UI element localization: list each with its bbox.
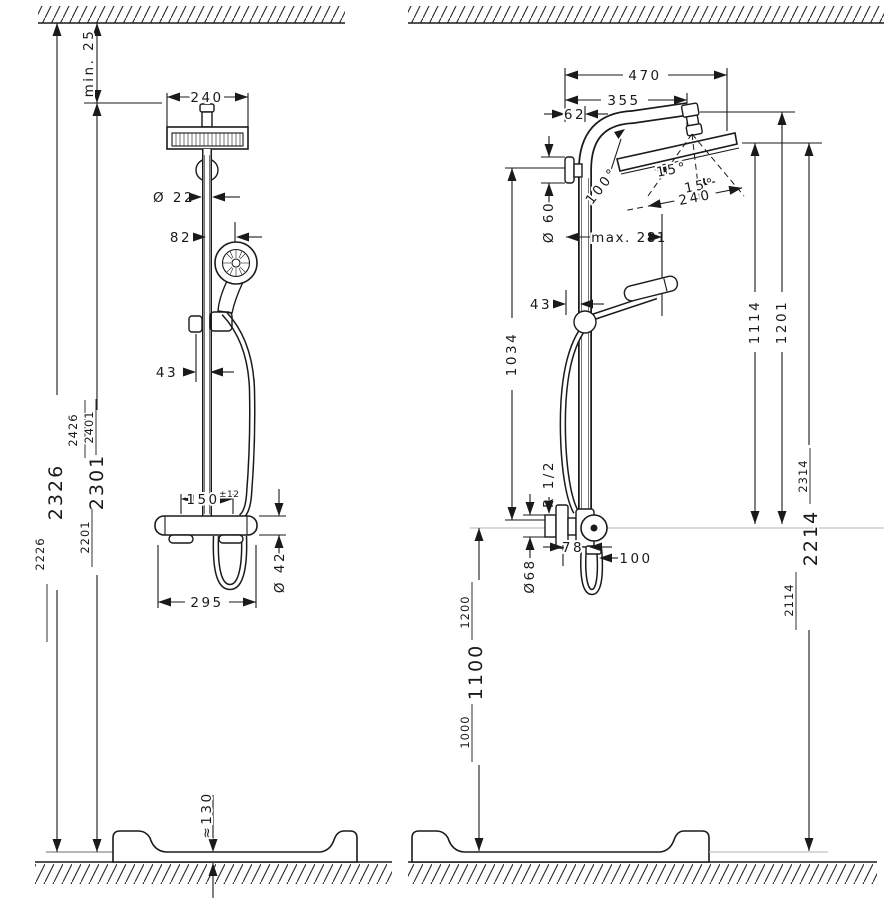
dim-hose-clearance-label: 100: [619, 551, 652, 567]
dim-valve-diameter-label: Ø 42: [272, 551, 288, 593]
wall-union-stub: [545, 515, 556, 537]
dim-wall-to-pipe-label: 62: [564, 107, 586, 123]
valve-handle-right: [219, 535, 243, 543]
dim-wall-to-pipe: 62: [544, 106, 608, 123]
dim-height-inner: min. 25 2201 2301 2401: [78, 23, 162, 852]
dim-hose-clearance: 100: [599, 551, 653, 567]
head-ball-joint: [681, 103, 702, 136]
valve-height-mid: 1100: [465, 644, 487, 700]
dim-slider-offset: 43: [156, 334, 234, 382]
height-outer-low: 2226: [33, 537, 47, 570]
dim-holder-offset-label: 43: [530, 297, 552, 313]
hand-shower-handle: [218, 281, 243, 313]
ceiling-left: [38, 6, 345, 23]
dim-slider-offset-label: 43: [156, 365, 178, 381]
ceiling-right: [408, 6, 884, 23]
height-outer-high: 2426: [66, 413, 80, 446]
valve-inlet-neck: [568, 518, 576, 535]
height-inner-high: 2401: [82, 410, 96, 443]
dim-union-diameter-label: Ø68: [522, 558, 538, 593]
valve-height-low: 1000: [458, 715, 472, 748]
shower-hose-left: [216, 313, 252, 587]
technical-drawing-page: 2226 2326 2426 min. 25 2201 2301 2401: [0, 0, 890, 900]
hand-shower-face: [215, 242, 257, 284]
dim-escutcheon-diameter: Ø 60: [541, 136, 565, 243]
valve-body: [155, 516, 257, 535]
dim-head-width-label: 240: [190, 90, 223, 106]
dim-head-height: 2114 2214 2314: [782, 143, 822, 851]
valve-handle-left: [169, 535, 193, 543]
shower-tray-right: [412, 831, 709, 862]
dim-head-size-label: 240: [677, 187, 713, 209]
head-connector-stem: [202, 112, 212, 127]
dim-holder-offset: 43: [530, 290, 604, 315]
dim-height-outer: 2226 2326 2426: [33, 23, 85, 852]
shower-tray-left: [113, 831, 357, 862]
dim-arm-to-valve-label: 1201: [774, 300, 790, 344]
height-inner-low: 2201: [78, 520, 92, 553]
shower-system-dimension-drawing: 2226 2326 2426 min. 25 2201 2301 2401: [0, 0, 890, 900]
dim-thread: R 1/2: [541, 460, 557, 514]
figure-right-side-view: 470 355 62: [412, 68, 884, 862]
height-inner-mid: 2301: [86, 454, 108, 510]
figure-left-front-view: 2226 2326 2426 min. 25 2201 2301 2401: [33, 23, 357, 898]
dim-tray-height-label: ≈130: [199, 791, 215, 838]
dim-valve-centers-tolerance: ±12: [219, 490, 240, 500]
valve-height-high: 1200: [458, 595, 472, 628]
riser-pipe-left: [205, 149, 210, 516]
dim-valve-centers-label: 150: [186, 492, 219, 508]
holder-pivot: [574, 311, 596, 333]
dim-arm-reach-label: 355: [607, 93, 640, 109]
dim-arm-reach-overall-label: 470: [628, 68, 661, 84]
thermostat-valve-left: [155, 516, 257, 543]
head-height-low: 2114: [782, 583, 796, 616]
overhead-shower-left: [167, 104, 248, 149]
dim-union-offset-label: 78: [562, 540, 584, 556]
dim-bracket-to-valve-label: 1034: [504, 332, 520, 376]
dim-head-to-valve-label: 1114: [747, 300, 763, 344]
height-outer-mid: 2326: [45, 464, 67, 520]
floor-right: [408, 862, 877, 884]
dim-union-diameter: Ø68: [522, 494, 545, 594]
valve-knob-center: [591, 525, 598, 532]
dim-escutcheon-diameter-label: Ø 60: [541, 201, 557, 243]
dim-arm-to-valve: 1201: [774, 112, 790, 524]
dim-valve-diameter: Ø 42: [259, 489, 288, 593]
dim-valve-height: 1000 1100 1200: [458, 528, 487, 851]
dim-ceiling-gap: min. 25: [81, 29, 97, 98]
head-height-mid: 2214: [800, 510, 822, 566]
hand-shower-left: [215, 242, 257, 313]
dim-pipe-diameter: Ø 22: [153, 190, 240, 206]
dim-valve-width-label: 295: [190, 595, 223, 611]
dim-pipe-diameter-label: Ø 22: [153, 190, 195, 206]
head-height-high: 2314: [796, 459, 810, 492]
dim-handshower-offset-label: 82: [170, 230, 192, 246]
